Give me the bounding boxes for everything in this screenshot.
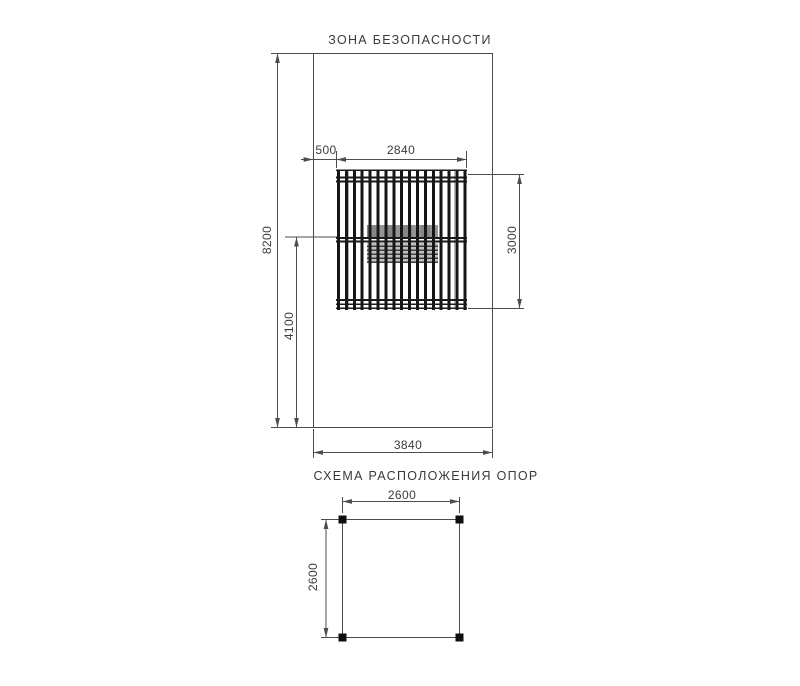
dim-label-zone-length: 8200: [261, 226, 273, 254]
support-layout-title: СХЕМА РАСПОЛОЖЕНИЯ ОПОР: [313, 470, 538, 483]
technical-drawing-canvas: ЗОНА БЕЗОПАСНОСТИ 500 2840 8200 4100 300…: [0, 0, 800, 686]
dim-label-support-span-y: 2600: [307, 563, 319, 591]
drawing-labels: ЗОНА БЕЗОПАСНОСТИ 500 2840 8200 4100 300…: [0, 0, 800, 686]
dim-label-edge-offset: 500: [315, 144, 336, 156]
dim-label-zone-half-length: 4100: [283, 312, 295, 340]
dim-label-equipment-width: 2840: [387, 144, 415, 156]
dim-label-equipment-depth: 3000: [506, 226, 518, 254]
dim-label-zone-width: 3840: [394, 439, 422, 451]
dim-label-support-span-x: 2600: [388, 489, 416, 501]
safety-zone-title: ЗОНА БЕЗОПАСНОСТИ: [328, 34, 492, 47]
